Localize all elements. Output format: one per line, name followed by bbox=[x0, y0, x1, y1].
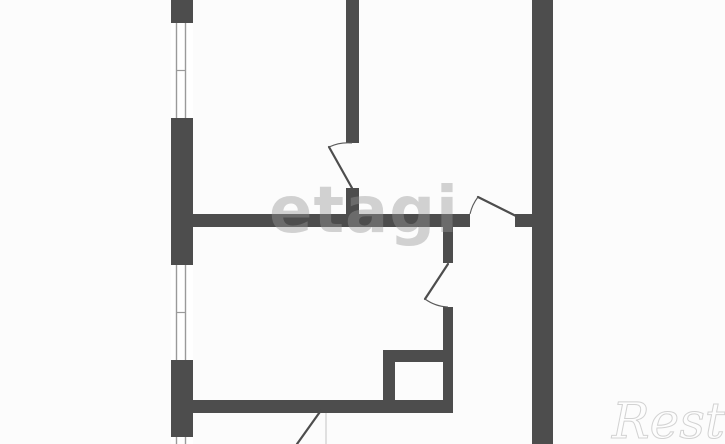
wall bbox=[515, 214, 532, 227]
window bbox=[171, 437, 193, 444]
wall bbox=[171, 118, 193, 265]
wall bbox=[346, 0, 359, 143]
wall bbox=[193, 400, 453, 413]
wall bbox=[383, 350, 453, 362]
watermark-etagi: etagi bbox=[269, 174, 459, 248]
floor-plan-image: etagi Restate bbox=[0, 0, 725, 444]
wall bbox=[532, 0, 553, 444]
wall bbox=[171, 0, 193, 23]
floor-plan-svg: etagi Restate bbox=[0, 0, 725, 444]
wall bbox=[171, 360, 193, 437]
watermark-restate: Restate bbox=[611, 392, 725, 444]
